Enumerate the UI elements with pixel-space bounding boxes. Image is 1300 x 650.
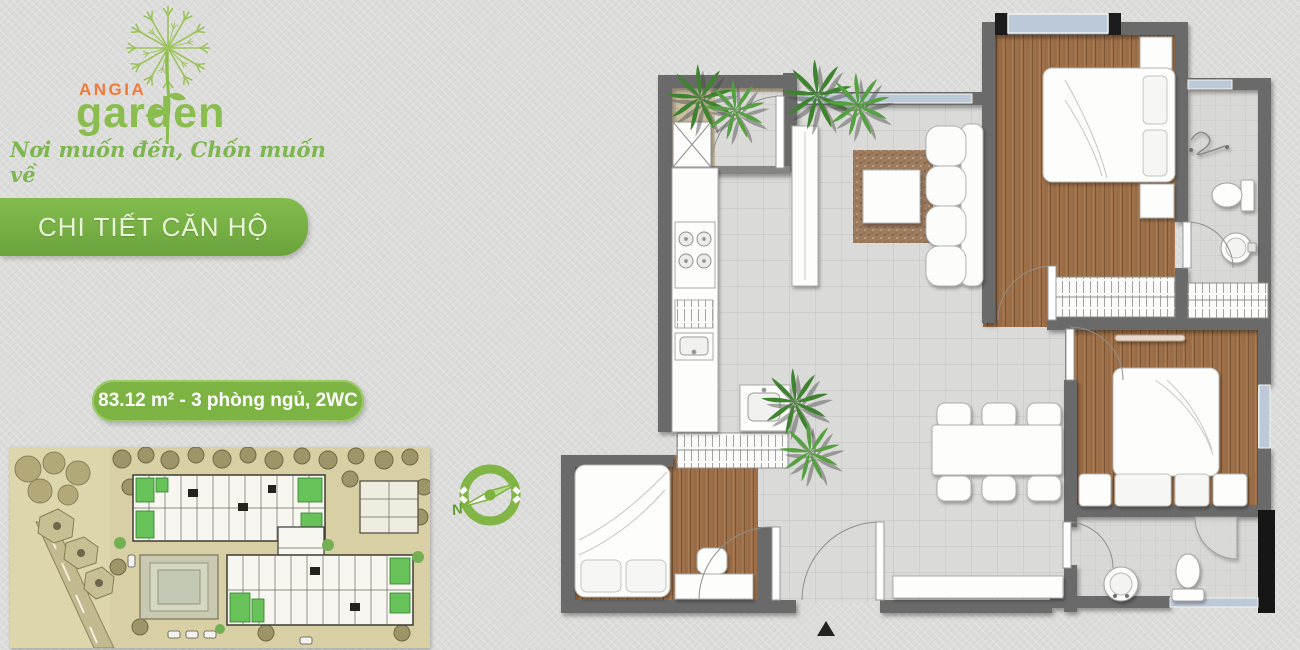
pillow xyxy=(1143,130,1167,176)
dining-chair xyxy=(1027,476,1061,501)
window-bedroom2 xyxy=(1259,385,1270,448)
door-leaf xyxy=(1183,222,1191,268)
site-building-b xyxy=(227,555,413,625)
unit-info-badge: 83.12 m² - 3 phòng ngủ, 2WC xyxy=(92,380,364,422)
brand-slogan: Nơi muốn đến, Chốn muốn về xyxy=(10,137,340,187)
sofa xyxy=(926,124,983,286)
dining-chair xyxy=(1027,403,1061,428)
sink xyxy=(1104,567,1138,601)
door-leaf xyxy=(876,522,884,600)
dining-chair xyxy=(982,476,1016,501)
dining-chair xyxy=(937,476,971,501)
dish-rack xyxy=(675,300,713,328)
bed-bench xyxy=(1079,474,1111,506)
shear-wall xyxy=(1258,510,1275,613)
stove xyxy=(675,222,715,288)
section-banner: CHI TIẾT CĂN HỘ xyxy=(0,198,308,256)
dining-chair xyxy=(937,403,971,428)
coffee-table xyxy=(863,170,920,223)
shelf xyxy=(1115,335,1185,341)
brand-logo: ANGIA garden Nơi muốn đến, Chốn muốn về xyxy=(0,0,360,185)
bed-bench xyxy=(1213,474,1247,506)
floor-plan xyxy=(555,0,1300,650)
window-master xyxy=(1008,14,1108,33)
site-pool xyxy=(140,555,218,619)
kitchen-sink xyxy=(675,333,713,360)
door-leaf xyxy=(772,527,780,600)
door-leaf xyxy=(776,96,784,168)
site-building-c xyxy=(360,481,418,533)
pillow xyxy=(1143,76,1167,124)
sideboard xyxy=(893,576,1063,598)
section-banner-label: CHI TIẾT CĂN HỘ xyxy=(0,198,308,256)
pillow xyxy=(1115,474,1171,506)
bed-bench xyxy=(1140,184,1174,218)
brand-product: garden xyxy=(76,92,225,135)
dining-chair xyxy=(982,403,1016,428)
pillow xyxy=(1175,474,1209,506)
service-shaft xyxy=(673,122,711,167)
nightstand xyxy=(1140,37,1172,69)
door-leaf xyxy=(1048,266,1056,320)
dining-set xyxy=(932,403,1062,501)
site-plan-thumbnail xyxy=(10,447,430,648)
compass-icon: N xyxy=(450,458,526,534)
page: { "brand": { "logo_text_top": "ANGIA", "… xyxy=(0,0,1300,650)
pillow xyxy=(626,560,666,592)
door-leaf xyxy=(1066,329,1074,380)
door-leaf xyxy=(1063,522,1071,568)
desk xyxy=(675,574,753,599)
pillow xyxy=(581,560,621,592)
window-bathroom1 xyxy=(1188,80,1232,89)
entrance-marker-icon xyxy=(817,621,835,636)
dining-table xyxy=(932,425,1062,475)
desk-chair xyxy=(697,548,727,574)
bed2 xyxy=(1113,368,1219,476)
